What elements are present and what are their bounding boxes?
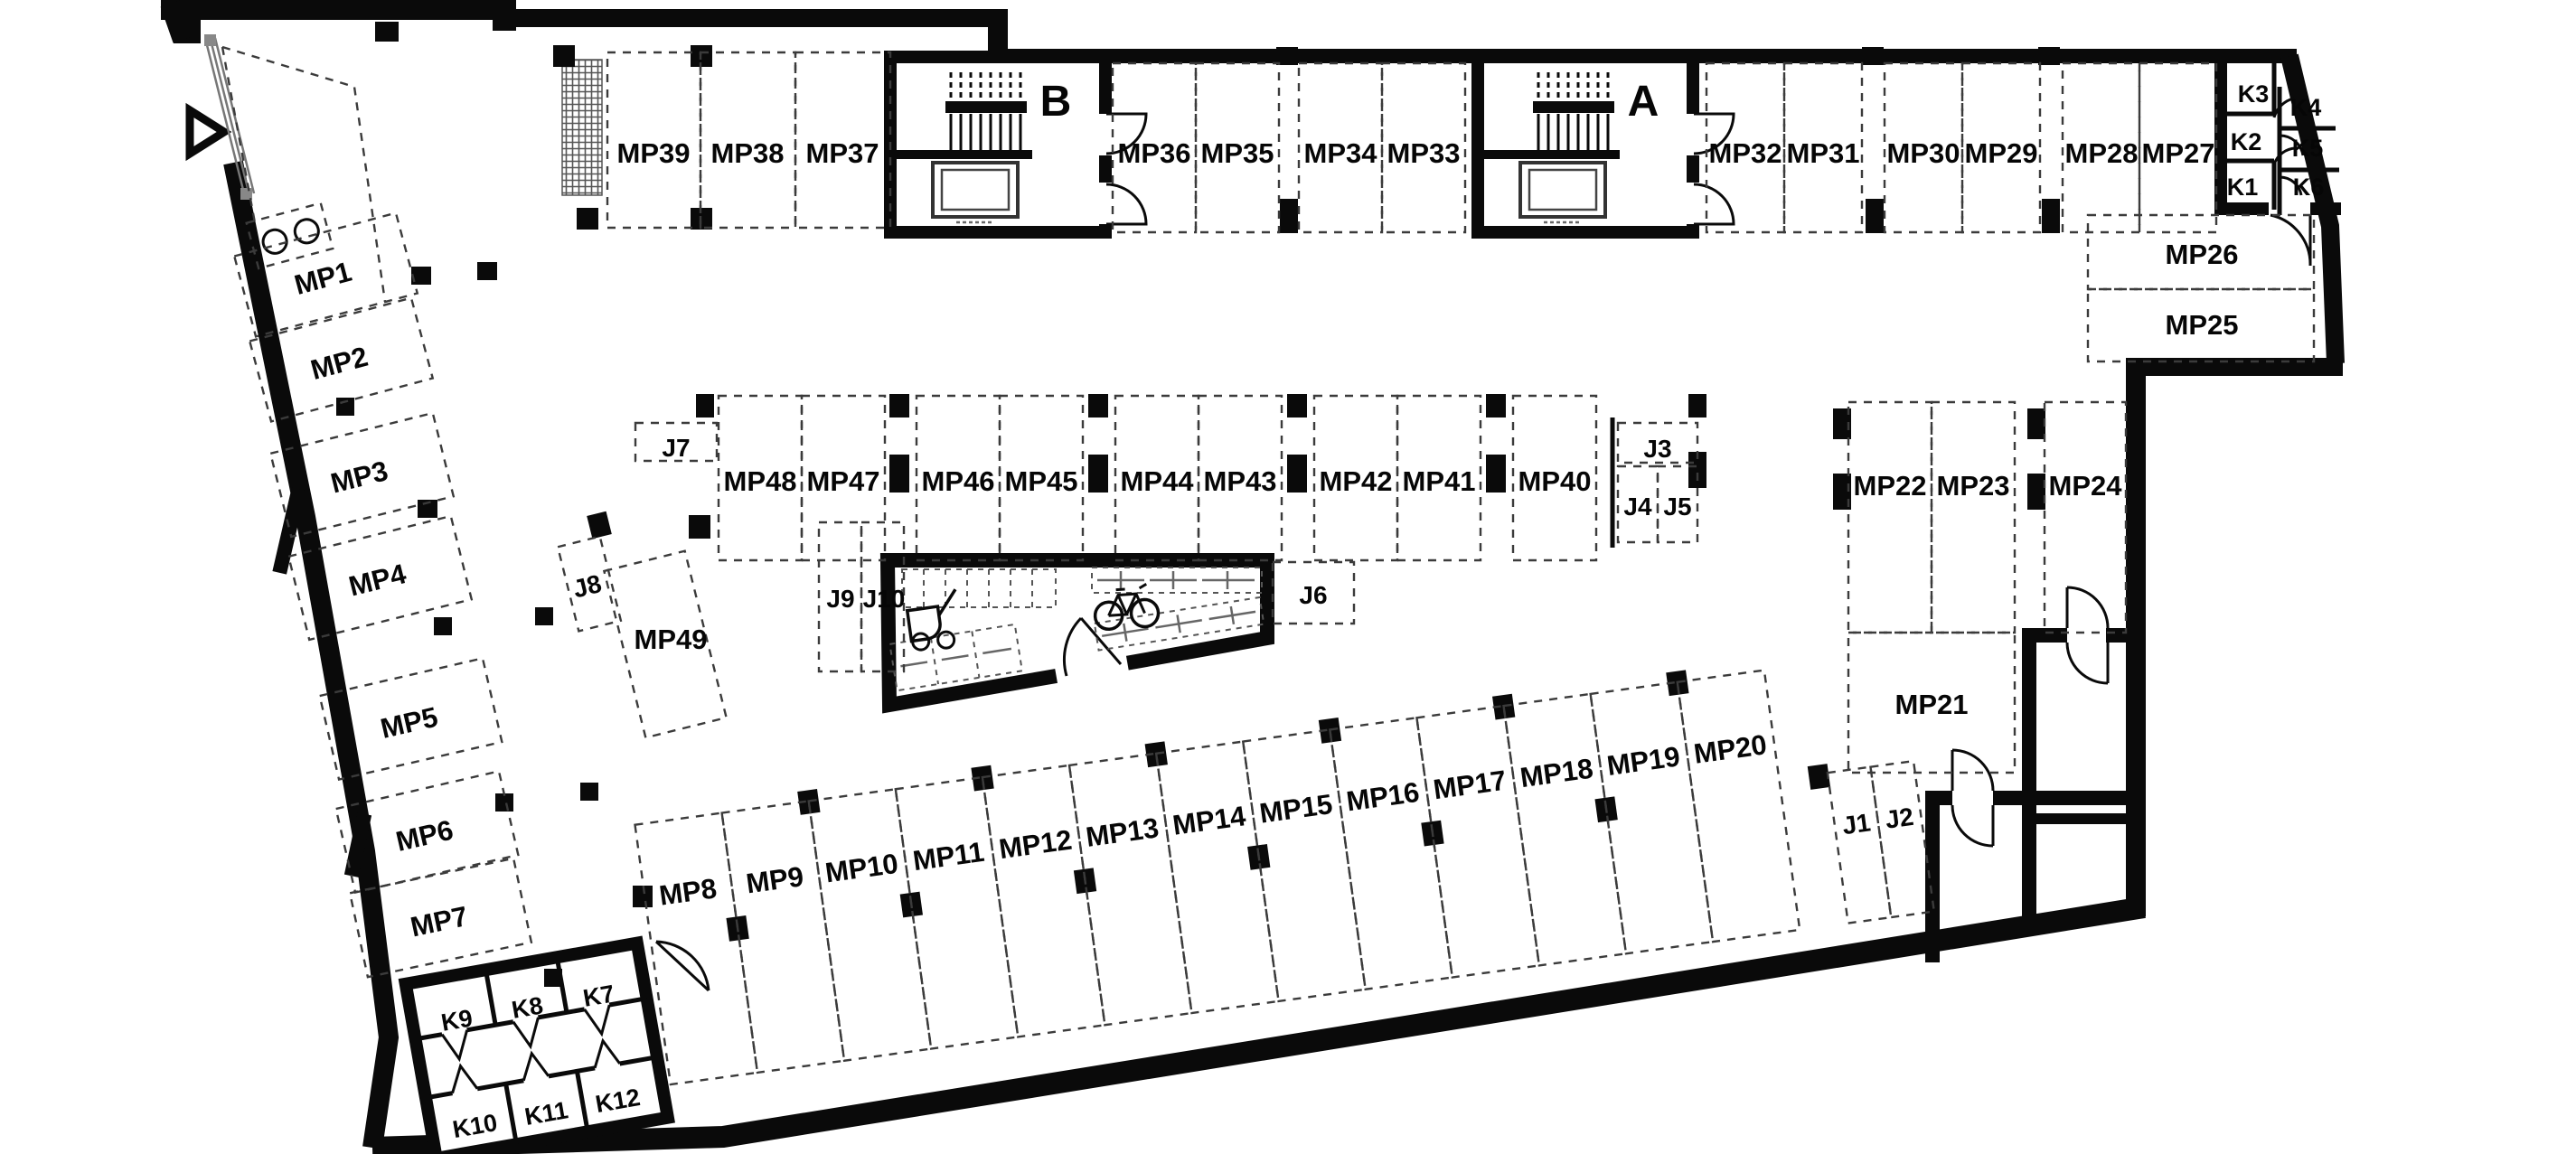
spot-label-k3: K3 <box>2238 80 2270 108</box>
wall-left <box>233 163 389 1148</box>
spot-box-mp18 <box>1504 694 1626 965</box>
spot-box-mp12 <box>982 765 1105 1037</box>
spot-label-j10: J10 <box>863 585 906 613</box>
spot-label-mp20: MP20 <box>1692 728 1769 770</box>
spot-label-k6: K6 <box>2293 174 2325 201</box>
spot-label-mp47: MP47 <box>807 465 880 497</box>
spot-label-k1: K1 <box>2227 174 2259 201</box>
door-arc <box>1952 750 1993 791</box>
spot-label-mp45: MP45 <box>1005 465 1078 497</box>
spot-label-mp24: MP24 <box>2049 470 2123 502</box>
gate-hinge <box>240 188 252 200</box>
wall-left-top <box>170 4 183 40</box>
spot-label-mp41: MP41 <box>1403 465 1476 497</box>
spot-label-j3: J3 <box>1643 435 1671 463</box>
wall-top-mid <box>493 9 999 27</box>
spot-label-mp3: MP3 <box>327 455 390 499</box>
spot-label-mp17: MP17 <box>1432 765 1509 806</box>
spot-label-j4: J4 <box>1623 493 1652 521</box>
spot-label-k9: K9 <box>439 1004 475 1037</box>
k-block-bottom-wall-l <box>2214 202 2269 215</box>
spot-label-mp12: MP12 <box>997 823 1074 865</box>
spot-label-mp33: MP33 <box>1387 137 1461 169</box>
spot-label-mp7: MP7 <box>408 900 471 943</box>
stairs-icon <box>945 72 1027 155</box>
spot-label-k4: K4 <box>2290 94 2322 121</box>
door-arc <box>2067 587 2108 628</box>
spot-label-mp48: MP48 <box>724 465 797 497</box>
spot-label-j8: J8 <box>570 569 605 604</box>
stroller-icon <box>906 589 964 652</box>
spot-label-mp38: MP38 <box>711 137 785 169</box>
labels-layer: MP1MP2MP3MP4MP5MP6MP7MP21MP22MP23MP24MP2… <box>291 78 2324 1143</box>
spot-box-mp20 <box>1678 671 1800 942</box>
door-arc <box>2067 643 2108 683</box>
door-arc-k-vestibule <box>656 942 709 990</box>
door-arc <box>1952 805 1993 846</box>
spot-label-mp25: MP25 <box>2166 309 2239 341</box>
core-a-door-gap-2 <box>1687 183 1701 224</box>
spot-box-mp24 <box>2045 402 2126 633</box>
spot-label-mp28: MP28 <box>2065 137 2139 169</box>
spot-label-mp2: MP2 <box>307 341 371 386</box>
spot-label-j7: J7 <box>662 434 690 462</box>
spot-label-mp18: MP18 <box>1518 752 1595 793</box>
bottom-row-layer: MP8MP9MP10MP11MP12MP13MP14MP15MP16MP17MP… <box>634 641 1934 1084</box>
spot-label-mp30: MP30 <box>1887 137 1960 169</box>
spot-label-mp23: MP23 <box>1937 470 2010 502</box>
k-block-bottom-wall-r <box>2310 202 2341 215</box>
spot-label-mp16: MP16 <box>1344 776 1421 818</box>
spot-label-j1: J1 <box>1840 808 1872 840</box>
bicycle-icon <box>1093 584 1159 631</box>
floor-plan-page: MP8MP9MP10MP11MP12MP13MP14MP15MP16MP17MP… <box>0 0 2576 1154</box>
spot-label-mp43: MP43 <box>1204 465 1277 497</box>
spot-label-mp31: MP31 <box>1787 137 1860 169</box>
wall-top-left <box>161 0 508 20</box>
wall-top-nub <box>493 0 516 31</box>
gate-hinge <box>204 34 216 46</box>
spot-label-mp27: MP27 <box>2142 137 2215 169</box>
spot-label-mp10: MP10 <box>823 848 900 889</box>
bike-stroller-room <box>888 560 1267 705</box>
spot-label-mp26: MP26 <box>2166 239 2239 270</box>
hatched-shaft-icon <box>562 60 602 195</box>
entrance-arrow-icon <box>190 110 224 154</box>
spot-label-mp32: MP32 <box>1709 137 1782 169</box>
core-letter-a: A <box>1628 78 1659 126</box>
core-a-door-gap-1 <box>1687 114 1701 155</box>
core-b-door-gap-1 <box>1099 114 1114 155</box>
spot-label-mp39: MP39 <box>617 137 691 169</box>
elevator-icon <box>1520 163 1605 222</box>
stairwell-core-b <box>890 57 1146 232</box>
core-letter-b: B <box>1040 78 1072 126</box>
spot-label-mp34: MP34 <box>1304 137 1378 169</box>
spot-label-mp21: MP21 <box>1895 689 1969 720</box>
spot-label-mp1: MP1 <box>291 256 355 301</box>
spot-label-mp9: MP9 <box>744 860 805 899</box>
spot-label-mp15: MP15 <box>1257 788 1334 830</box>
floorplan-svg: MP8MP9MP10MP11MP12MP13MP14MP15MP16MP17MP… <box>0 0 2576 1154</box>
spot-label-k7: K7 <box>581 980 616 1012</box>
spot-box-mp14 <box>1156 742 1278 1013</box>
elevator-icon <box>933 163 1018 222</box>
spot-label-mp13: MP13 <box>1084 812 1161 853</box>
spot-label-mp42: MP42 <box>1320 465 1393 497</box>
spot-label-mp6: MP6 <box>393 814 456 858</box>
spot-label-k5: K5 <box>2292 135 2324 162</box>
spot-label-mp49: MP49 <box>635 624 708 655</box>
spot-label-mp19: MP19 <box>1605 740 1682 782</box>
spot-box-mp10 <box>809 789 931 1060</box>
core-b-walls <box>890 57 1105 232</box>
spot-label-mp35: MP35 <box>1201 137 1274 169</box>
spot-label-j2: J2 <box>1884 802 1915 834</box>
spot-box-mp16 <box>1330 718 1452 989</box>
spot-label-mp36: MP36 <box>1118 137 1191 169</box>
spot-label-mp46: MP46 <box>922 465 995 497</box>
spot-label-mp40: MP40 <box>1518 465 1592 497</box>
spot-label-j6: J6 <box>1299 581 1327 609</box>
entrance-ramp <box>190 34 385 302</box>
core-a-walls <box>1478 57 1693 232</box>
spot-label-j9: J9 <box>826 585 854 613</box>
stairs-icon <box>1533 72 1614 155</box>
stairwell-core-a <box>1478 57 1734 232</box>
spot-label-mp44: MP44 <box>1121 465 1195 497</box>
spot-box-j2 <box>1870 761 1933 917</box>
spot-label-mp14: MP14 <box>1170 800 1248 841</box>
core-b-door-gap-2 <box>1099 183 1114 224</box>
spot-box-mp23 <box>1932 402 2015 633</box>
spot-label-mp22: MP22 <box>1854 470 1927 502</box>
spot-label-k8: K8 <box>510 991 545 1024</box>
spot-label-k2: K2 <box>2231 128 2262 155</box>
spot-label-mp5: MP5 <box>378 701 441 745</box>
spot-label-mp8: MP8 <box>657 872 719 911</box>
spot-box-mp22 <box>1848 402 1932 633</box>
spot-label-mp4: MP4 <box>345 558 409 603</box>
parking-spots-layer <box>234 52 2314 977</box>
spot-label-mp37: MP37 <box>806 137 879 169</box>
spot-label-mp29: MP29 <box>1965 137 2038 169</box>
spot-label-mp11: MP11 <box>911 836 986 877</box>
spot-label-j5: J5 <box>1663 493 1691 521</box>
